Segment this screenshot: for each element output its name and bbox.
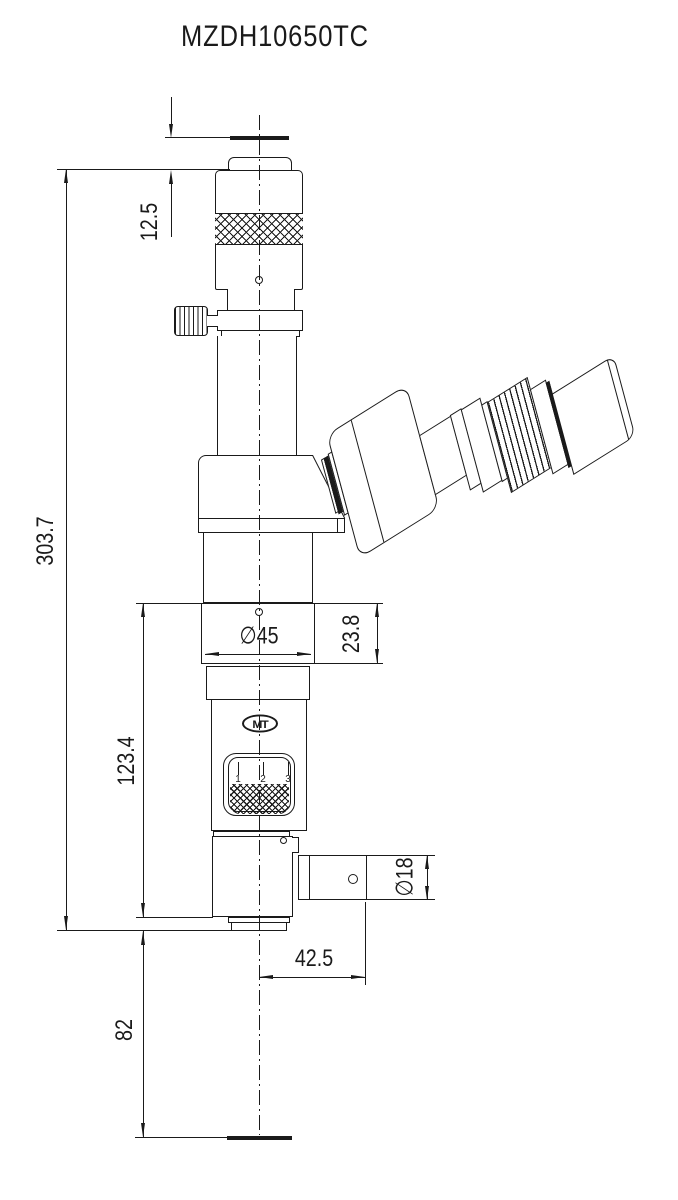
ext-line-flange-top — [57, 169, 230, 170]
ext-line-ring-top — [136, 603, 383, 604]
dim-18-arrow-top — [425, 855, 429, 869]
thumb-screw-knob — [174, 306, 208, 336]
stage-plane-mark — [227, 1136, 292, 1140]
dim-45-arrow-left — [205, 652, 219, 656]
dim-123-4-label: 123.4 — [113, 736, 141, 785]
dim-82-label: 82 — [111, 1019, 139, 1041]
mounting-arm-seam — [309, 855, 310, 900]
arm-step — [292, 837, 299, 853]
dim-42-5-arrow-left — [259, 975, 273, 979]
dim-12-5-tail-top — [171, 97, 172, 124]
dim-12-5-arrow-bottom — [169, 170, 173, 184]
main-body-upper — [203, 533, 313, 603]
prism-housing-seam — [351, 420, 384, 542]
prism-head — [198, 455, 313, 519]
dim-45-line — [205, 654, 311, 655]
dim-45-label: ∅45 — [239, 622, 278, 651]
dim-23-8-arrow-top — [375, 603, 379, 617]
dim-12-5-label: 12.5 — [136, 203, 164, 241]
head-mount-plate — [198, 518, 345, 533]
photo-tube — [217, 336, 297, 456]
dim-42-5-line — [259, 977, 365, 978]
focus-block — [212, 836, 293, 917]
dim-82-arrow-top — [141, 931, 145, 945]
dim-23-8-label: 23.8 — [338, 615, 366, 653]
head-mount-plate-step — [337, 518, 338, 533]
dim-123-4-arrow-top — [141, 603, 145, 617]
ring-taper-section — [206, 666, 310, 700]
dim-18-arrow-bottom — [425, 886, 429, 900]
thumb-screw-shaft — [207, 315, 218, 327]
mounting-arm-hole — [348, 874, 358, 884]
drawing-sheet: MZDH10650TC MT — [0, 0, 678, 1200]
ext-line-block-bottom — [136, 917, 213, 918]
drawing-title: MZDH10650TC — [181, 20, 369, 54]
dim-82-line — [143, 931, 144, 1137]
dim-12-5-tail-bottom — [171, 184, 172, 237]
mt-logo: MT — [242, 714, 278, 732]
dim-42-5-label: 42.5 — [295, 945, 333, 973]
dim-303-7-arrow-bottom — [64, 916, 68, 930]
dim-12-5-arrow-top — [169, 124, 173, 138]
clamp-ring — [217, 310, 303, 331]
dim-82-arrow-bottom — [141, 1123, 145, 1137]
dim-123-4-arrow-bottom — [141, 903, 145, 917]
ext-line-lens-bottom — [57, 930, 233, 931]
ext-line-top-mark — [165, 137, 230, 138]
eyecup-rim — [607, 360, 629, 440]
dim-303-7-arrow-top — [64, 169, 68, 183]
adapter-flange — [228, 157, 292, 171]
dim-303-7-line — [66, 169, 67, 930]
focus-block-screw — [280, 837, 287, 844]
dim-23-8-arrow-bottom — [375, 649, 379, 663]
dim-18-label: ∅18 — [391, 857, 420, 896]
eyepiece-assembly — [329, 406, 627, 486]
adapter-neck — [227, 289, 295, 311]
ext-line-arm-right — [365, 902, 366, 985]
dim-45-arrow-right — [297, 652, 311, 656]
dim-42-5-arrow-right — [351, 975, 365, 979]
dim-303-7-label: 303.7 — [32, 516, 60, 565]
ext-line-ring-bottom — [315, 663, 383, 664]
dim-123-4-line — [143, 603, 144, 917]
